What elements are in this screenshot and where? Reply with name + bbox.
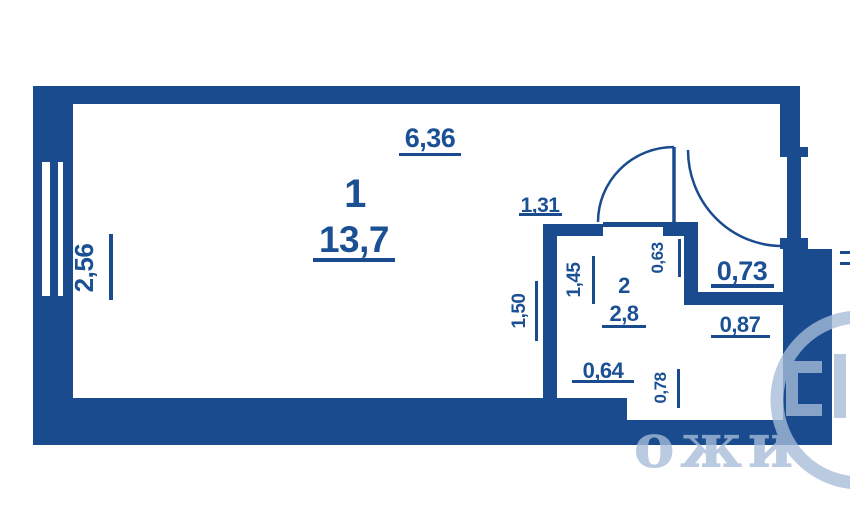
dim-room2-width: 1,45 <box>564 262 585 298</box>
dim-room1-depth: 2,56 <box>69 244 99 293</box>
door-jamb-top-right <box>780 147 808 157</box>
room2-number: 2 <box>618 273 630 298</box>
dim-room2-depth: 1,50 <box>509 294 530 329</box>
wall-top <box>33 86 800 104</box>
dim-doorway-width: 1,31 <box>521 194 561 217</box>
wall-room2-left <box>543 224 557 398</box>
door-swing-arc-balcony <box>688 150 782 246</box>
wall-mid-horizontal <box>684 292 783 305</box>
room1-area: 13,7 <box>319 219 389 260</box>
room2-area: 2,8 <box>609 301 638 326</box>
dim-lower-niche-depth: 0,78 <box>651 372 670 403</box>
dimline-0-63 <box>678 239 681 277</box>
wall-left-upper <box>33 86 73 162</box>
edge-tick-1 <box>840 251 850 254</box>
wall-right-door-section <box>787 157 801 238</box>
doorway-jamb <box>663 222 684 236</box>
watermark-bar-icon <box>834 354 846 418</box>
watermark-letters: ожи <box>634 409 799 482</box>
wall-right-upper <box>780 104 800 147</box>
dimline-2-56 <box>109 234 113 300</box>
window-glazing-line <box>50 162 58 296</box>
dim-room1-width: 6,36 <box>405 123 456 153</box>
door-swing-arc-room2 <box>598 147 674 222</box>
door-jamb-bottom-right <box>780 238 808 249</box>
dimline-1-50 <box>535 281 538 341</box>
dimline-6-36 <box>399 153 461 156</box>
edge-tick-2 <box>840 262 850 265</box>
floorplan-canvas: 6,36 1 13,7 2,56 1,31 1,45 1,50 0,63 2 2… <box>0 0 850 522</box>
dim-balcony-niche-width: 0,73 <box>717 256 768 286</box>
dim-room2-lower-width: 0,64 <box>583 358 625 383</box>
room1-number: 1 <box>344 172 366 216</box>
dim-lower-niche-width: 0,87 <box>720 312 761 337</box>
wall-bottom-main <box>33 398 627 445</box>
labels: 6,36 1 13,7 2,56 1,31 1,45 1,50 0,63 2 2… <box>69 123 768 404</box>
dim-niche-top-width: 0,63 <box>648 242 667 273</box>
doorway-threshold-line <box>603 222 663 227</box>
dimline-1-45 <box>592 256 595 304</box>
dimline-0-78 <box>677 369 680 408</box>
window-outer-line <box>33 162 42 296</box>
